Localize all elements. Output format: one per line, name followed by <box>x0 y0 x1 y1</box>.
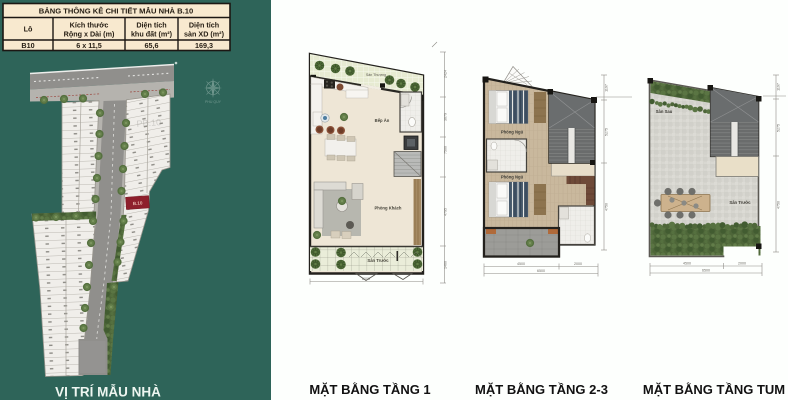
svg-text:4750: 4750 <box>777 201 781 209</box>
svg-text:4500: 4500 <box>683 262 691 266</box>
svg-text:Lô: Lô <box>24 25 33 34</box>
svg-text:Sân Trước: Sân Trước <box>729 200 751 205</box>
svg-text:6500: 6500 <box>702 269 710 273</box>
svg-text:169,3: 169,3 <box>195 41 213 50</box>
svg-text:Diện tích: Diện tích <box>189 21 219 30</box>
svg-text:Phòng Ngủ: Phòng Ngủ <box>501 175 524 180</box>
svg-text:Kích thước: Kích thước <box>70 21 109 30</box>
svg-text:3679: 3679 <box>444 113 448 121</box>
svg-text:MẶT BẰNG TẦNG TUM: MẶT BẰNG TẦNG TUM <box>643 382 785 397</box>
svg-text:4750: 4750 <box>605 203 609 211</box>
svg-text:1460: 1460 <box>444 261 448 269</box>
svg-text:Phòng Ngủ: Phòng Ngủ <box>501 130 524 135</box>
svg-text:Rộng x Dài (m): Rộng x Dài (m) <box>64 30 115 39</box>
svg-text:BẢNG THÔNG KÊ CHI TIẾT MẪU NHÀ: BẢNG THÔNG KÊ CHI TIẾT MẪU NHÀ B.10 <box>39 6 193 16</box>
svg-text:2000: 2000 <box>738 262 746 266</box>
svg-text:PB.10: PB.10 <box>136 117 161 129</box>
svg-text:MẶT BẰNG TẦNG 1: MẶT BẰNG TẦNG 1 <box>309 382 430 397</box>
svg-text:Bếp Ăn: Bếp Ăn <box>375 118 390 123</box>
svg-text:2424: 2424 <box>444 70 448 78</box>
svg-text:MẶT BẰNG TẦNG 2-3: MẶT BẰNG TẦNG 2-3 <box>475 382 608 397</box>
svg-text:5275: 5275 <box>605 128 609 136</box>
svg-text:Sân Trước: Sân Trước <box>367 258 389 263</box>
svg-text:Sân Thượng: Sân Thượng <box>366 73 386 77</box>
svg-text:1197: 1197 <box>777 83 781 91</box>
svg-text:PHU QUY: PHU QUY <box>205 100 222 104</box>
svg-text:4500: 4500 <box>517 262 525 266</box>
svg-text:B10: B10 <box>21 41 34 50</box>
svg-text:Sân Sau: Sân Sau <box>656 109 673 114</box>
svg-text:B.10: B.10 <box>133 200 143 206</box>
svg-text:1197: 1197 <box>605 84 609 92</box>
svg-text:Phòng Khách: Phòng Khách <box>375 206 402 211</box>
svg-text:6 x 11,5: 6 x 11,5 <box>76 41 102 50</box>
svg-text:4795: 4795 <box>444 208 448 216</box>
svg-text:VỊ TRÍ MẪU NHÀ: VỊ TRÍ MẪU NHÀ <box>55 385 161 400</box>
svg-text:2000: 2000 <box>574 262 582 266</box>
svg-text:65,6: 65,6 <box>145 41 159 50</box>
svg-text:sàn XD (m²): sàn XD (m²) <box>184 30 225 39</box>
svg-text:Diện tích: Diện tích <box>136 21 166 30</box>
svg-text:5275: 5275 <box>777 124 781 132</box>
svg-text:6500: 6500 <box>537 269 545 273</box>
svg-text:7500: 7500 <box>444 146 448 154</box>
svg-text:6000: 6000 <box>362 277 370 281</box>
svg-text:khu đất (m²): khu đất (m²) <box>131 30 173 39</box>
